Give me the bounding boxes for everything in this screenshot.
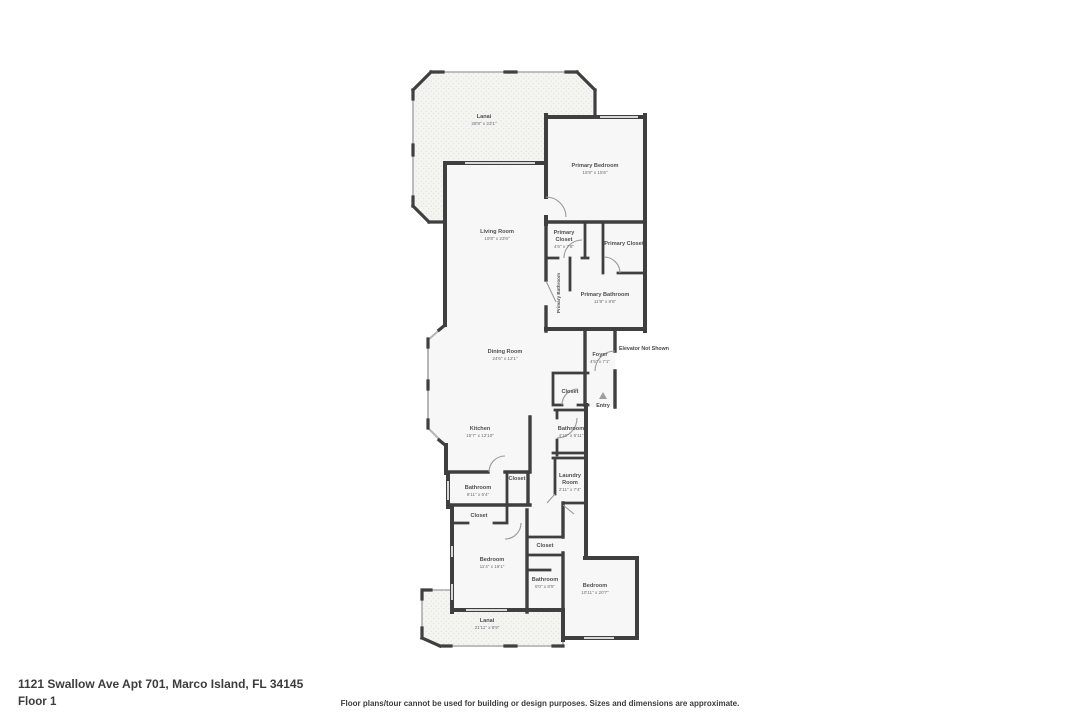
room-label-laundry-2: Room [562,480,578,486]
room-dims-primary-bathroom: 11'9" x 9'8" [594,299,617,304]
room-label-lanai-top: Lanai [477,114,492,120]
room-label-living-room: Living Room [480,229,514,235]
room-label-bathroom-mid: Bathroom [532,577,558,583]
room-label-bedroom-right: Bedroom [583,583,608,589]
room-label-laundry-1: Laundry [559,473,582,479]
room-dims-kitchen: 15'7" x 12'10" [466,433,494,438]
room-dims-bedroom-left: 11'4" x 19'1" [480,564,505,569]
room-dims-dining-room: 24'6" x 12'1" [492,356,518,361]
room-dims-primary-bedroom: 15'9" x 15'6" [582,170,608,175]
room-label-dining-room: Dining Room [488,349,523,355]
room-label-primary-closet-left-2: Closet [555,237,572,243]
room-dims-foyer: 4'5" x 7'1" [590,359,610,364]
room-dims-living-room: 19'8" x 23'6" [484,236,510,241]
room-dims-bathroom-mid: 5'0" x 8'5" [535,584,555,589]
room-label-closet-kitchen: Closet [508,476,525,482]
floor-plan-canvas: Lanai 28'8" x 23'1" Primary Bedroom 15'9… [0,0,1080,720]
room-label-closet-foyer: Closet [561,389,578,395]
room-label-closet-mid: Closet [536,543,553,549]
room-dims-laundry: 2'11" x 7'4" [559,487,582,492]
room-label-lanai-bottom: Lanai [480,618,495,624]
room-dims-bathroom-hall: 4'10" x 6'11" [559,433,584,438]
room-label-bedroom-left: Bedroom [480,557,505,563]
room-label-closet-bedroom-left: Closet [470,513,487,519]
entry-label: Entry [596,403,610,409]
room-dims-primary-closet-left: 4'6" x 7'8" [554,244,574,249]
floor-plan-page: Lanai 28'8" x 23'1" Primary Bedroom 15'9… [0,0,1080,720]
room-dims-bedroom-right: 10'11" x 20'7" [581,590,609,595]
room-label-bathroom-hall: Bathroom [558,426,584,432]
room-dims-bathroom-left: 8'11" x 5'4" [467,492,490,497]
room-label-kitchen: Kitchen [470,426,491,432]
room-label-primary-closet-left-1: Primary [554,230,576,236]
room-dims-lanai-top: 28'8" x 23'1" [471,121,497,126]
room-label-foyer: Foyer [592,352,608,358]
room-label-primary-closet-right: Primary Closet [604,241,644,247]
elevator-note: Elevator Not Shown [619,346,669,352]
room-label-bathroom-left: Bathroom [465,485,491,491]
room-dims-lanai-bottom: 21'11" x 8'9" [475,625,500,630]
disclaimer-text: Floor plans/tour cannot be used for buil… [0,699,1080,708]
room-label-primary-bathroom-hall: Primary Bathroom [556,273,561,313]
room-label-primary-bathroom: Primary Bathroom [581,292,630,298]
room-label-primary-bedroom: Primary Bedroom [572,163,619,169]
property-address: 1121 Swallow Ave Apt 701, Marco Island, … [18,677,303,691]
